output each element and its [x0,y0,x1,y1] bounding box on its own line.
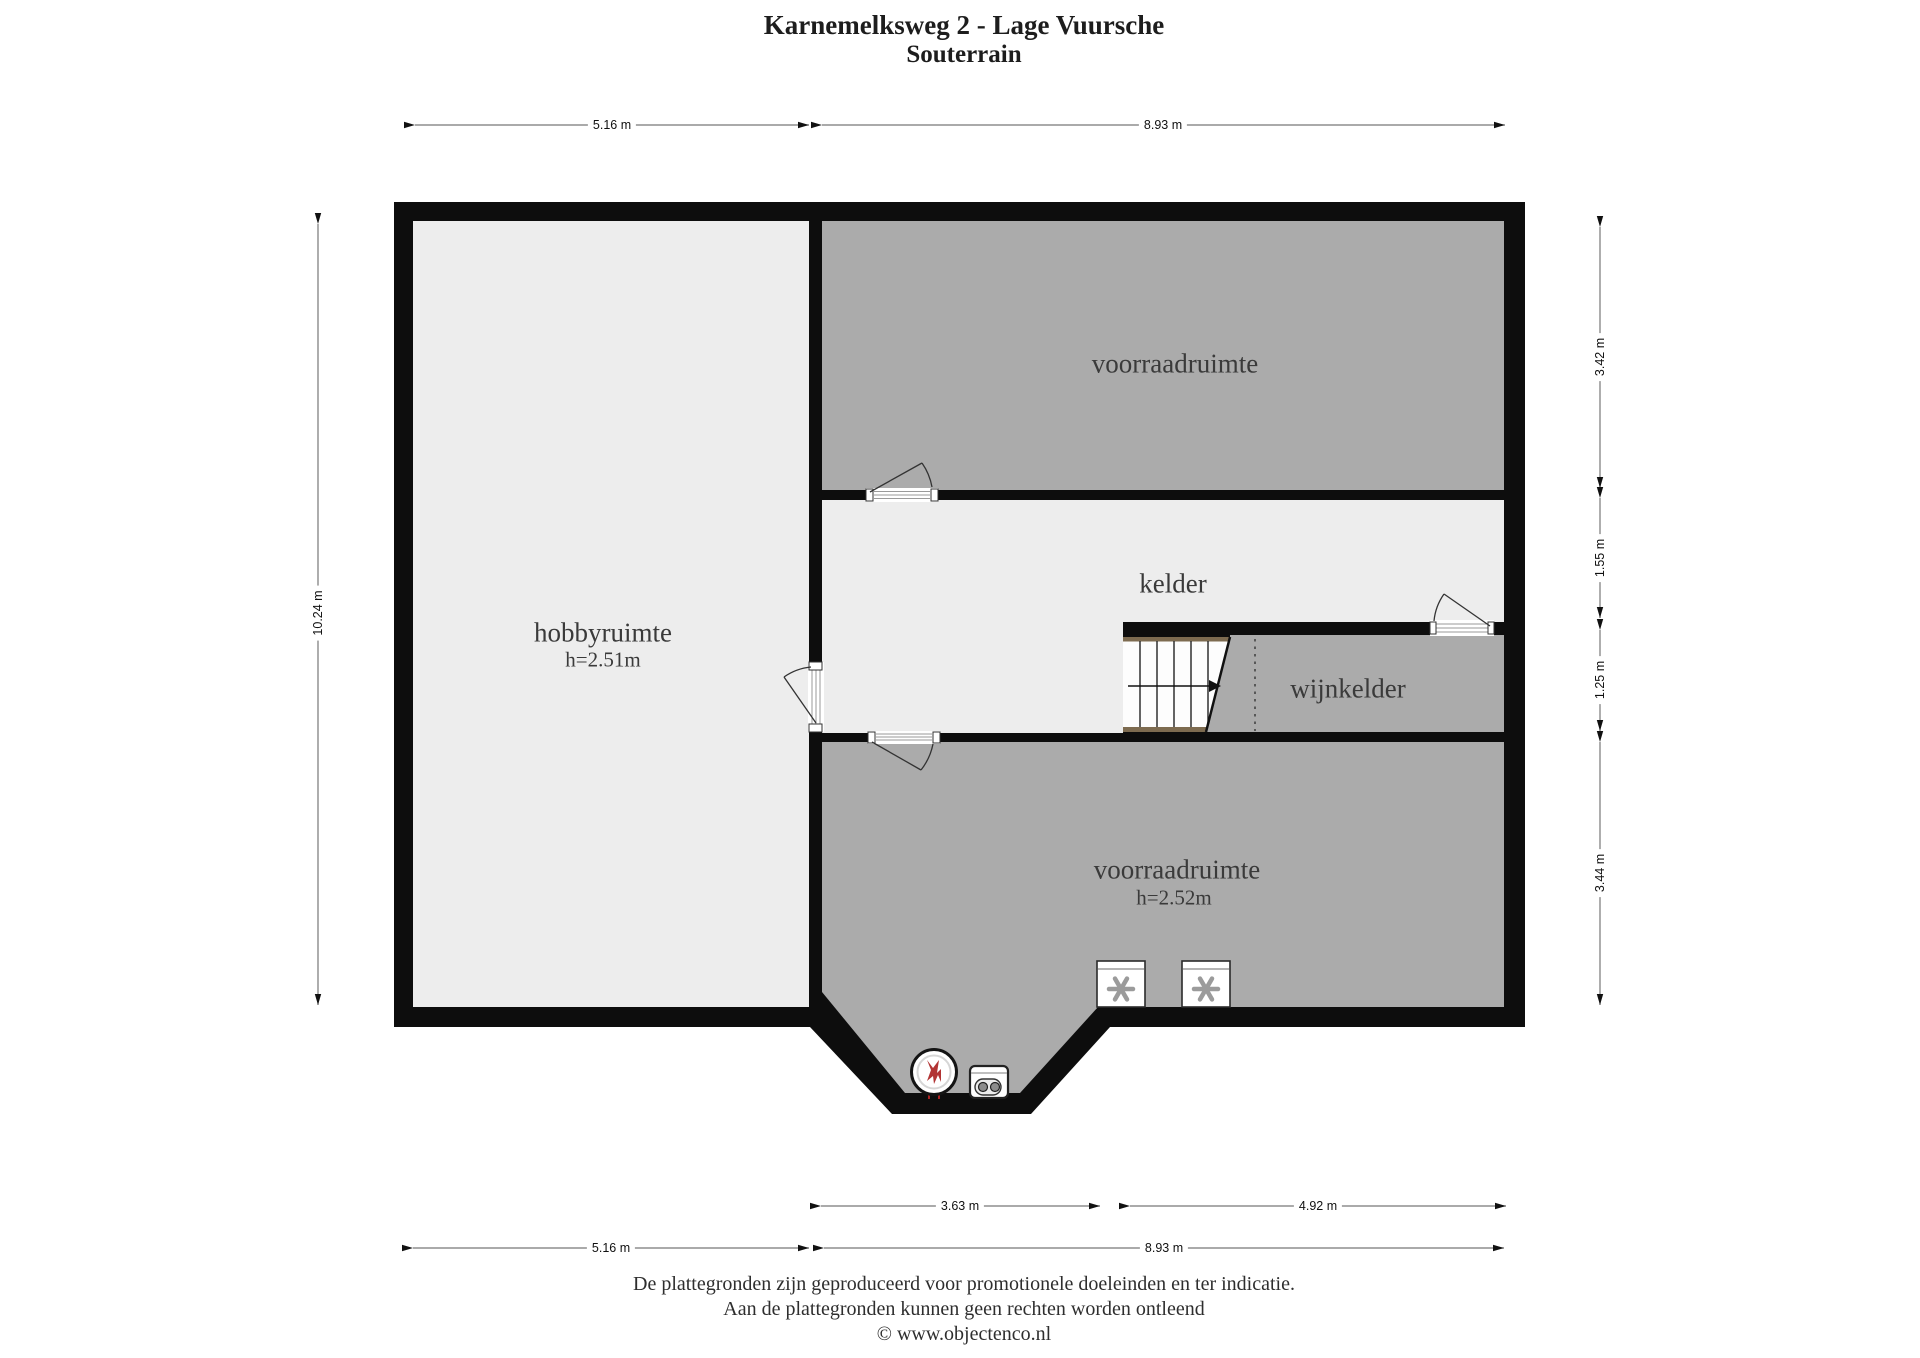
dim-bottom-outer-left: 5.16 m [587,1241,635,1255]
page-subtitle: Souterrain [0,41,1920,70]
dim-top-right: 8.93 m [1139,118,1187,132]
floorplan-drawing [0,0,1920,1358]
label-voorraadruimte-bottom-height: h=2.52m [1136,886,1211,911]
appliance-asterisk-1 [1097,961,1145,1007]
room-kelder-lower [822,500,1123,733]
dim-bottom-inner-left: 3.63 m [936,1199,984,1213]
label-hobbyruimte-height: h=2.51m [565,648,640,673]
dim-bottom-inner-right: 4.92 m [1294,1199,1342,1213]
floorplan-page: Karnemelksweg 2 - Lage Vuursche Souterra… [0,0,1920,1358]
dim-right-2: 1.55 m [1593,534,1607,582]
appliance-asterisk-2 [1182,961,1230,1007]
stairs-bottom-edge [1123,727,1207,732]
label-wijnkelder: wijnkelder [1290,674,1405,705]
label-kelder: kelder [1139,569,1206,600]
label-voorraadruimte-top: voorraadruimte [1092,349,1258,380]
dim-right-1: 3.42 m [1593,333,1607,381]
footer-copyright: © www.objectenco.nl [0,1322,1920,1347]
pump-unit-icon [970,1066,1008,1098]
page-title: Karnemelksweg 2 - Lage Vuursche [0,10,1920,41]
label-hobbyruimte: hobbyruimte [534,618,672,649]
footer-line2: Aan de plattegronden kunnen geen rechten… [0,1297,1920,1322]
footer-line1: De plattegronden zijn geproduceerd voor … [0,1272,1920,1297]
footer: De plattegronden zijn geproduceerd voor … [0,1272,1920,1347]
stairs-top-edge [1123,637,1230,642]
dim-bottom-outer-right: 8.93 m [1140,1241,1188,1255]
dim-left-total: 10.24 m [311,585,325,640]
room-hobbyruimte [413,221,809,1007]
dim-right-4: 3.44 m [1593,849,1607,897]
title-block: Karnemelksweg 2 - Lage Vuursche Souterra… [0,10,1920,70]
label-voorraadruimte-bottom: voorraadruimte [1094,855,1260,886]
dim-right-3: 1.25 m [1593,656,1607,704]
room-voorraadruimte-bottom [822,742,1504,1093]
dim-top-left: 5.16 m [588,118,636,132]
